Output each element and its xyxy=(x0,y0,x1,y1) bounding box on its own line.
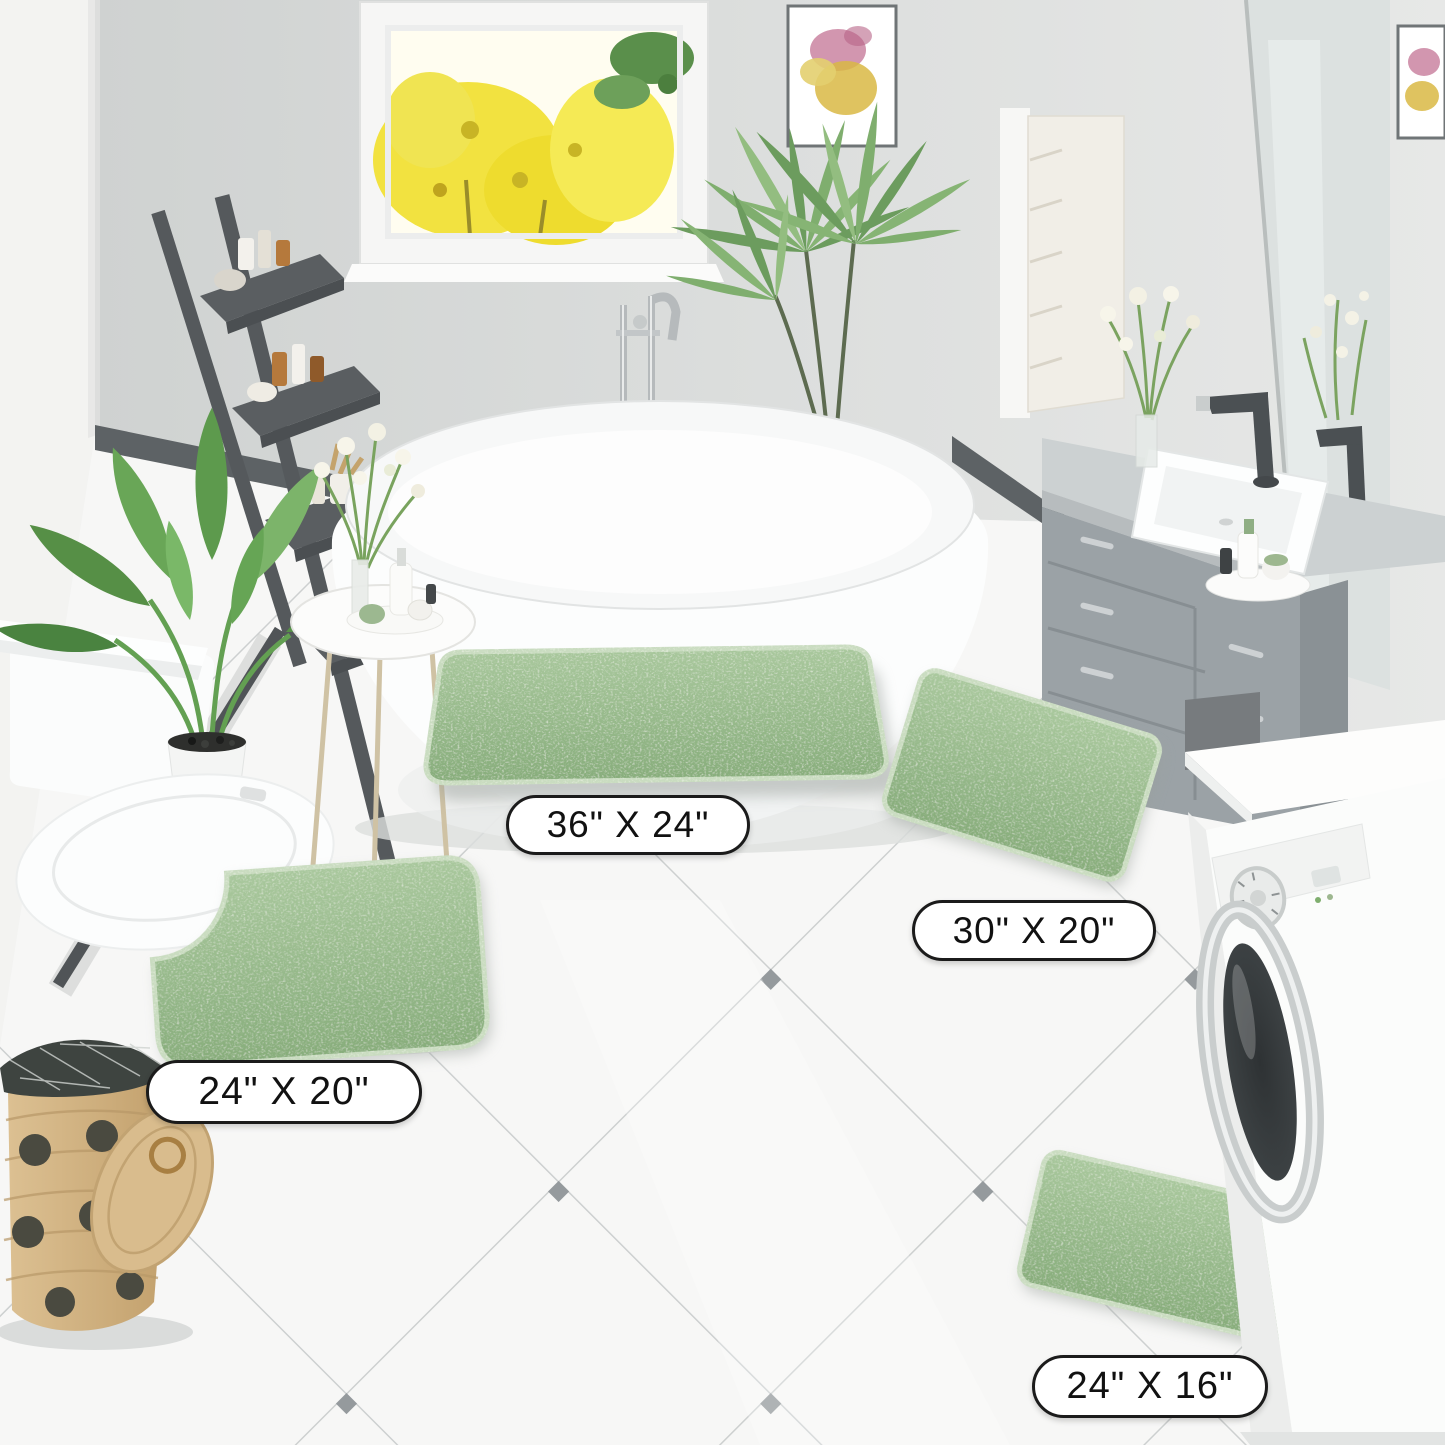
size-label-30x20: 30" X 20" xyxy=(912,900,1156,961)
bathroom-scene: 36" X 24" 30" X 20" 24" X 20" 24" X 16" xyxy=(0,0,1445,1445)
size-label-36x24: 36" X 24" xyxy=(506,795,750,855)
size-label-24x20-contour: 24" X 20" xyxy=(146,1060,422,1124)
wall-art-corner xyxy=(1398,26,1445,138)
scene-illustration xyxy=(0,0,1445,1445)
wall-art-frame xyxy=(788,6,896,146)
size-label-24x16: 24" X 16" xyxy=(1032,1355,1268,1418)
rug-large xyxy=(426,647,896,801)
window xyxy=(344,2,724,282)
linen-cabinet xyxy=(1000,108,1124,418)
window-view xyxy=(373,28,694,245)
